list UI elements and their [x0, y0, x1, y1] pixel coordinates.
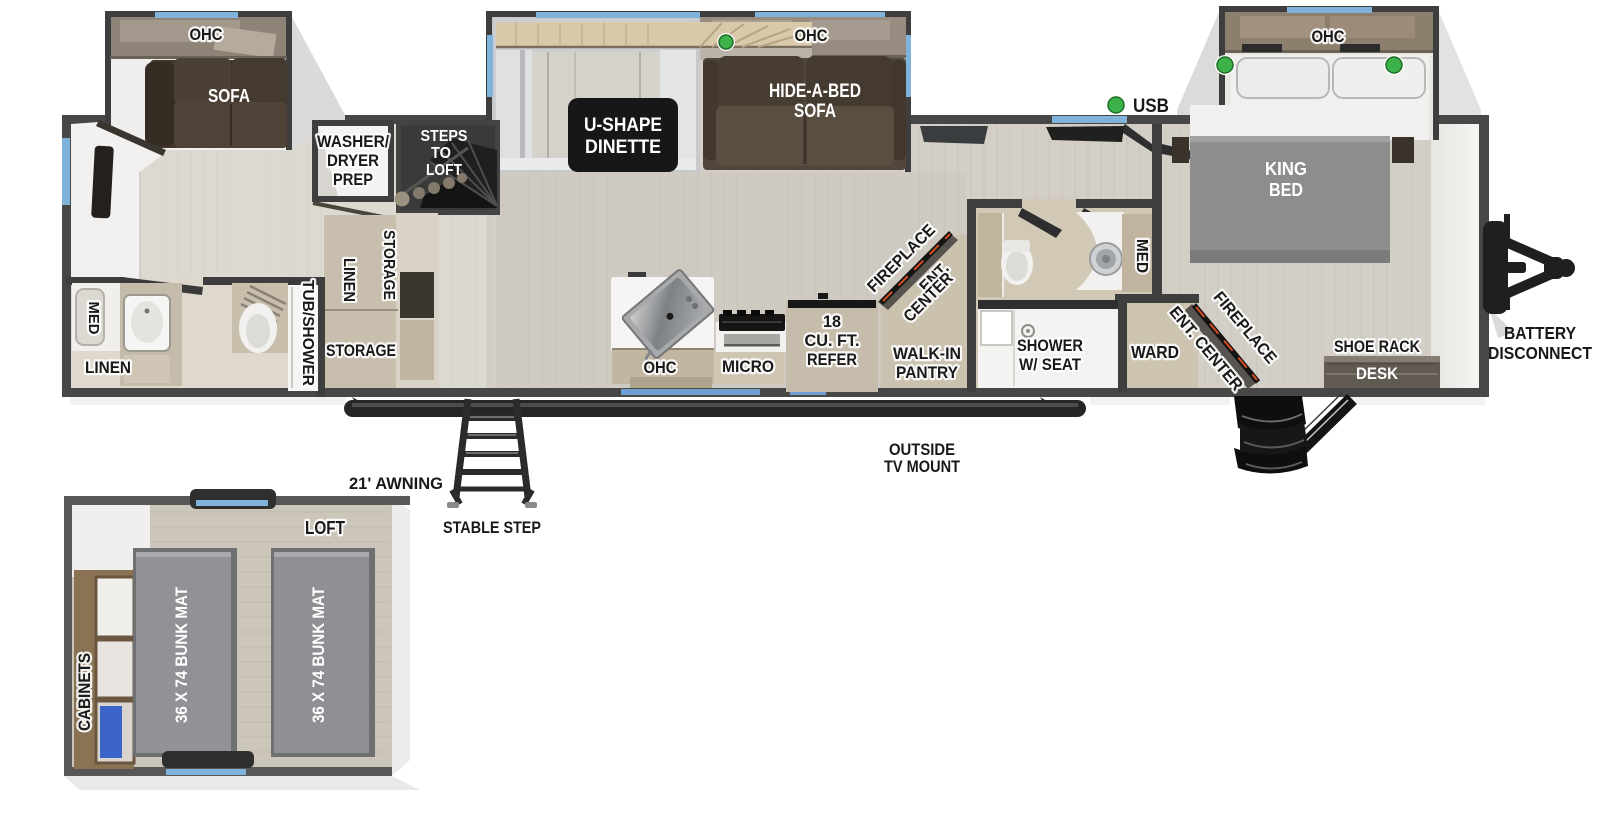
svg-text:LINEN: LINEN	[340, 258, 357, 302]
svg-text:DINETTE: DINETTE	[585, 137, 661, 158]
svg-text:18: 18	[823, 312, 841, 331]
svg-text:REFER: REFER	[807, 350, 857, 369]
svg-text:PREP: PREP	[333, 171, 373, 189]
svg-text:CABINETS: CABINETS	[76, 653, 94, 731]
svg-text:21' AWNING: 21' AWNING	[349, 474, 443, 493]
svg-text:OUTSIDE: OUTSIDE	[889, 441, 955, 459]
svg-text:WASHER/: WASHER/	[317, 133, 389, 151]
svg-text:MED: MED	[85, 302, 102, 335]
svg-text:USB: USB	[1133, 96, 1169, 117]
svg-text:STEPS: STEPS	[421, 128, 468, 145]
svg-text:DESK: DESK	[1356, 364, 1399, 383]
svg-text:HIDE-A-BED: HIDE-A-BED	[769, 81, 861, 102]
svg-text:DISCONNECT: DISCONNECT	[1488, 343, 1592, 363]
svg-text:LOFT: LOFT	[305, 517, 346, 538]
svg-text:LINEN: LINEN	[85, 359, 131, 377]
svg-text:SHOE RACK: SHOE RACK	[1334, 337, 1421, 356]
svg-text:OHC: OHC	[190, 25, 223, 44]
svg-text:36 X 74 BUNK MAT: 36 X 74 BUNK MAT	[310, 587, 328, 723]
svg-text:STORAGE: STORAGE	[326, 342, 396, 360]
svg-text:KING: KING	[1265, 158, 1307, 179]
svg-text:BATTERY: BATTERY	[1504, 323, 1576, 343]
svg-text:36 X 74 BUNK MAT: 36 X 74 BUNK MAT	[173, 587, 191, 723]
svg-text:OHC: OHC	[795, 26, 828, 45]
svg-text:BED: BED	[1269, 179, 1303, 200]
svg-text:OHC: OHC	[1312, 27, 1345, 46]
svg-text:LOFT: LOFT	[426, 162, 462, 179]
svg-text:PANTRY: PANTRY	[896, 363, 959, 382]
svg-text:STORAGE: STORAGE	[380, 230, 397, 300]
svg-text:TV MOUNT: TV MOUNT	[884, 458, 960, 476]
svg-text:STABLE STEP: STABLE STEP	[443, 518, 541, 537]
svg-text:OHC: OHC	[644, 359, 677, 377]
svg-text:SHOWER: SHOWER	[1017, 336, 1083, 355]
svg-text:U-SHAPE: U-SHAPE	[584, 115, 662, 136]
svg-text:SOFA: SOFA	[794, 101, 836, 122]
svg-text:MICRO: MICRO	[722, 358, 774, 376]
svg-text:CU. FT.: CU. FT.	[805, 331, 860, 350]
svg-text:TO: TO	[431, 145, 451, 162]
svg-text:WARD: WARD	[1131, 342, 1179, 362]
svg-text:TUB/SHOWER: TUB/SHOWER	[299, 280, 316, 386]
svg-text:W/ SEAT: W/ SEAT	[1019, 355, 1082, 374]
svg-text:DRYER: DRYER	[327, 152, 379, 170]
svg-text:MED: MED	[1133, 239, 1150, 273]
svg-text:SOFA: SOFA	[208, 86, 250, 106]
svg-text:WALK-IN: WALK-IN	[893, 344, 961, 363]
